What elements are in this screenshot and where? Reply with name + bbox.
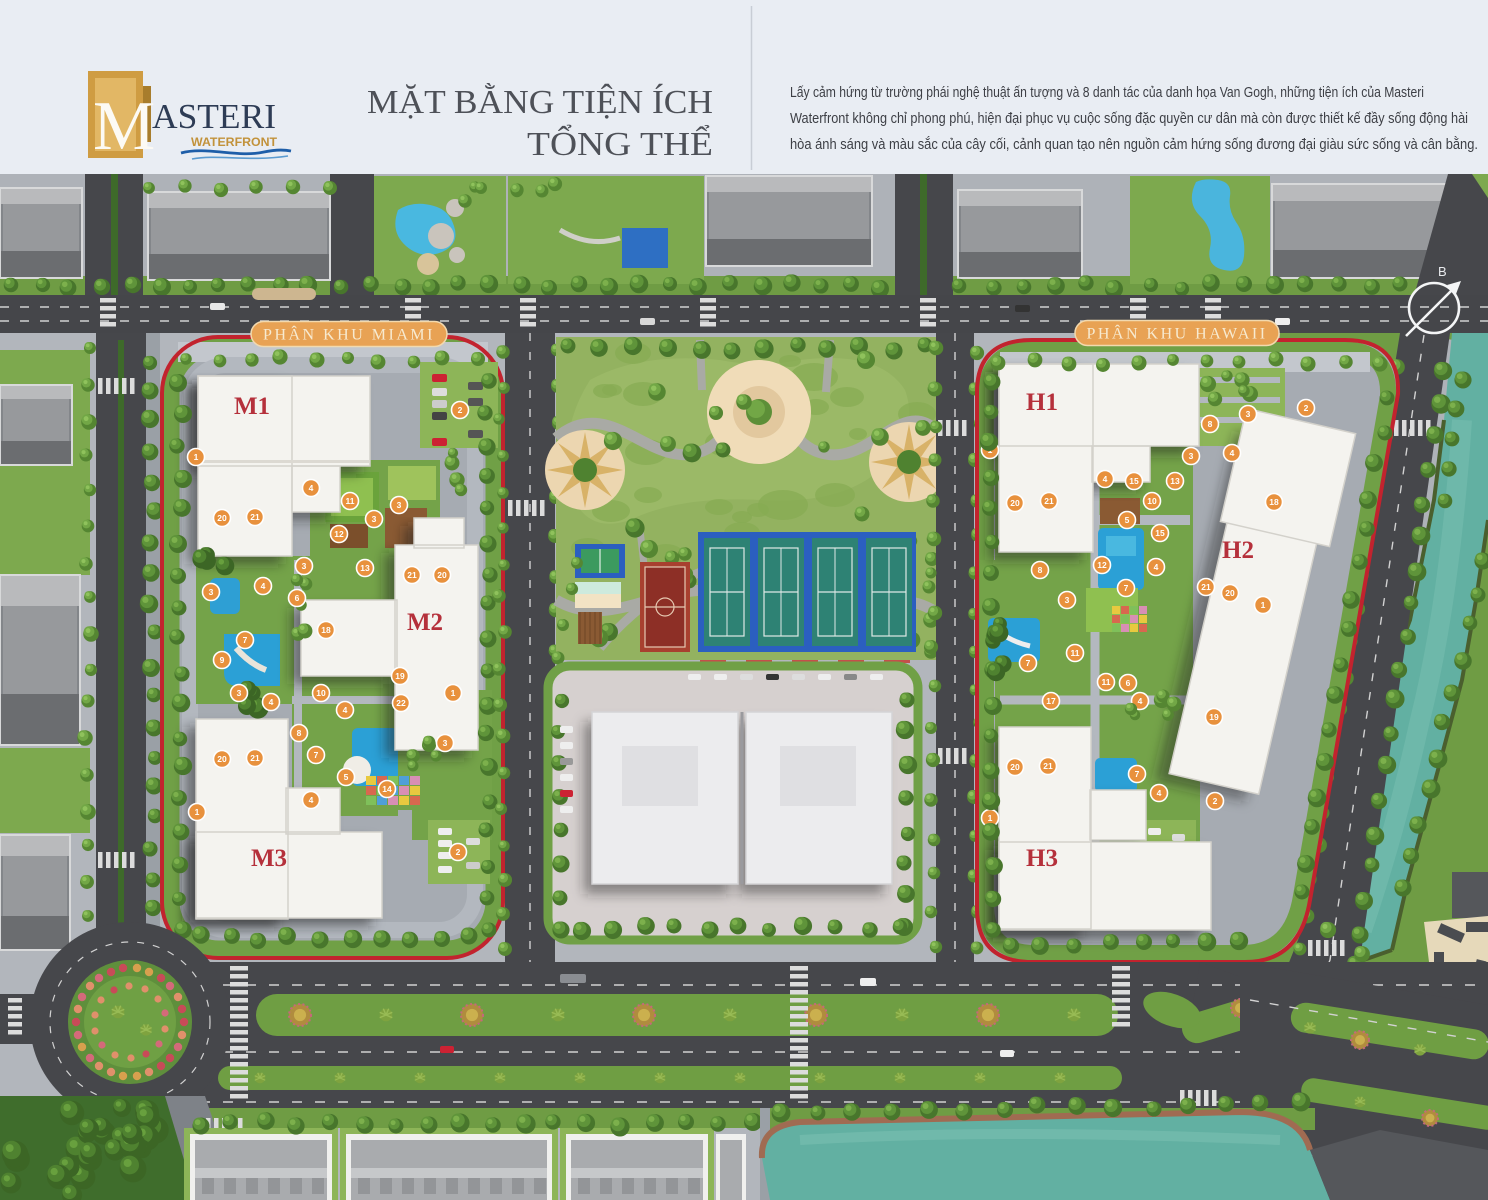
svg-text:7: 7	[1026, 658, 1031, 668]
svg-text:15: 15	[1155, 528, 1165, 538]
svg-text:13: 13	[360, 563, 370, 573]
svg-text:17: 17	[1046, 696, 1056, 706]
svg-text:3: 3	[209, 587, 214, 597]
svg-text:21: 21	[1201, 582, 1211, 592]
svg-text:1: 1	[451, 688, 456, 698]
svg-text:7: 7	[314, 750, 319, 760]
svg-text:5: 5	[1125, 515, 1130, 525]
svg-text:10: 10	[316, 688, 326, 698]
svg-text:7: 7	[243, 635, 248, 645]
svg-text:18: 18	[1269, 497, 1279, 507]
svg-text:4: 4	[309, 795, 314, 805]
svg-text:4: 4	[343, 705, 348, 715]
svg-text:8: 8	[1208, 419, 1213, 429]
svg-text:TỔNG THỂ: TỔNG THỂ	[527, 124, 713, 163]
svg-text:Waterfront không chỉ phong phú: Waterfront không chỉ phong phú, hiện đại…	[790, 110, 1468, 127]
svg-text:7: 7	[1124, 583, 1129, 593]
svg-text:2: 2	[458, 405, 463, 415]
svg-text:B: B	[1438, 264, 1447, 279]
svg-text:3: 3	[302, 561, 307, 571]
svg-text:8: 8	[1038, 565, 1043, 575]
svg-text:10: 10	[1147, 496, 1157, 506]
svg-text:H2: H2	[1222, 537, 1254, 564]
svg-text:11: 11	[1102, 677, 1111, 687]
svg-text:20: 20	[1010, 762, 1020, 772]
svg-text:6: 6	[295, 593, 300, 603]
svg-text:12: 12	[334, 529, 344, 539]
svg-text:3: 3	[372, 514, 377, 524]
svg-text:3: 3	[1246, 409, 1251, 419]
svg-text:4: 4	[261, 581, 266, 591]
svg-text:20: 20	[217, 754, 227, 764]
svg-text:4: 4	[1230, 448, 1235, 458]
svg-text:20: 20	[1225, 588, 1235, 598]
svg-text:1: 1	[988, 813, 993, 823]
svg-text:3: 3	[1065, 595, 1070, 605]
svg-text:4: 4	[309, 483, 314, 493]
svg-text:20: 20	[437, 570, 447, 580]
svg-text:20: 20	[217, 513, 227, 523]
svg-text:WATERFRONT: WATERFRONT	[191, 135, 278, 149]
svg-text:21: 21	[1043, 761, 1053, 771]
svg-text:PHÂN KHU MIAMI: PHÂN KHU MIAMI	[263, 325, 435, 344]
svg-text:14: 14	[382, 784, 392, 794]
svg-text:12: 12	[1097, 560, 1107, 570]
svg-text:H1: H1	[1026, 389, 1058, 416]
svg-text:4: 4	[1154, 562, 1159, 572]
svg-text:20: 20	[1010, 498, 1020, 508]
svg-text:3: 3	[237, 688, 242, 698]
svg-text:21: 21	[407, 570, 417, 580]
svg-text:8: 8	[297, 728, 302, 738]
svg-text:11: 11	[1071, 648, 1080, 658]
svg-text:2: 2	[456, 847, 461, 857]
svg-text:5: 5	[344, 772, 349, 782]
svg-text:6: 6	[1126, 678, 1131, 688]
svg-text:M3: M3	[251, 845, 287, 872]
svg-text:MẶT BẰNG TIỆN ÍCH: MẶT BẰNG TIỆN ÍCH	[367, 83, 713, 121]
svg-text:2: 2	[1304, 403, 1309, 413]
svg-text:21: 21	[1044, 496, 1054, 506]
svg-text:15: 15	[1129, 476, 1139, 486]
svg-text:19: 19	[1209, 712, 1219, 722]
svg-text:1: 1	[195, 807, 200, 817]
svg-text:11: 11	[346, 496, 355, 506]
svg-text:H3: H3	[1026, 845, 1058, 872]
svg-text:ASTERI: ASTERI	[152, 97, 276, 136]
svg-text:PHÂN KHU HAWAII: PHÂN KHU HAWAII	[1086, 324, 1267, 343]
svg-text:21: 21	[250, 753, 260, 763]
svg-text:7: 7	[1135, 769, 1140, 779]
svg-text:4: 4	[1138, 696, 1143, 706]
svg-text:21: 21	[250, 512, 260, 522]
svg-text:3: 3	[443, 738, 448, 748]
svg-text:M1: M1	[234, 393, 270, 420]
svg-text:4: 4	[1103, 474, 1108, 484]
svg-text:22: 22	[396, 698, 406, 708]
svg-text:1: 1	[1261, 600, 1266, 610]
svg-text:19: 19	[395, 671, 405, 681]
svg-text:2: 2	[1213, 796, 1218, 806]
svg-text:3: 3	[397, 500, 402, 510]
svg-text:13: 13	[1170, 476, 1180, 486]
svg-text:4: 4	[269, 697, 274, 707]
svg-text:M2: M2	[407, 609, 443, 636]
svg-text:Lấy cảm hứng từ trường phái ng: Lấy cảm hứng từ trường phái nghệ thuật ấ…	[790, 84, 1424, 101]
svg-text:M: M	[93, 88, 155, 165]
svg-text:3: 3	[1189, 451, 1194, 461]
svg-text:18: 18	[321, 625, 331, 635]
svg-text:4: 4	[1157, 788, 1162, 798]
svg-text:1: 1	[194, 452, 199, 462]
svg-text:9: 9	[220, 655, 225, 665]
svg-text:hòa ánh sáng và màu sắc của câ: hòa ánh sáng và màu sắc của cây cối, cản…	[790, 136, 1478, 153]
